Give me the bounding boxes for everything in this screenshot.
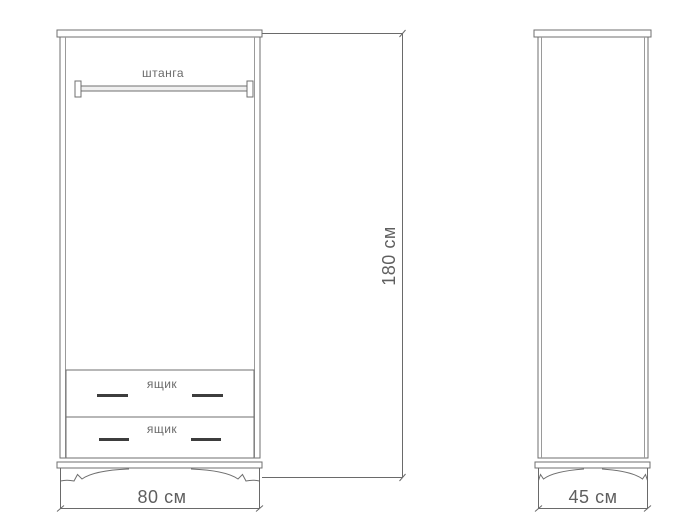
front-top-panel: [57, 30, 262, 37]
drawer-2-left-handle: [99, 438, 129, 441]
front-width-dimension: 80 см: [57, 468, 263, 512]
front-left-foot: [61, 469, 130, 481]
drawer-2-right-handle: [191, 438, 221, 441]
drawing-canvas: штанга ящик ящик: [0, 0, 694, 527]
front-right-foot: [191, 469, 260, 481]
side-view: [534, 30, 651, 481]
drawer-1-left-handle: [97, 394, 128, 397]
side-left-foot: [539, 469, 585, 481]
front-width-label: 80 см: [138, 487, 187, 507]
front-view: штанга ящик ящик: [57, 30, 262, 481]
rod-left-bracket: [75, 81, 81, 97]
side-plinth: [535, 462, 650, 468]
side-top-panel: [534, 30, 651, 37]
drawer-1-label: ящик: [147, 377, 178, 391]
front-plinth: [57, 462, 262, 468]
side-depth-label: 45 см: [569, 487, 618, 507]
drawer-1-right-handle: [192, 394, 223, 397]
wardrobe-dimension-diagram: штанга ящик ящик: [0, 0, 694, 527]
height-label: 180 см: [379, 226, 399, 285]
rod-label: штанга: [142, 66, 184, 80]
side-right-foot: [602, 469, 648, 481]
hanging-rod: [80, 86, 248, 91]
rod-right-bracket: [247, 81, 253, 97]
height-dimension: 180 см: [262, 30, 406, 481]
drawer-2-label: ящик: [147, 422, 178, 436]
side-body: [538, 37, 648, 458]
